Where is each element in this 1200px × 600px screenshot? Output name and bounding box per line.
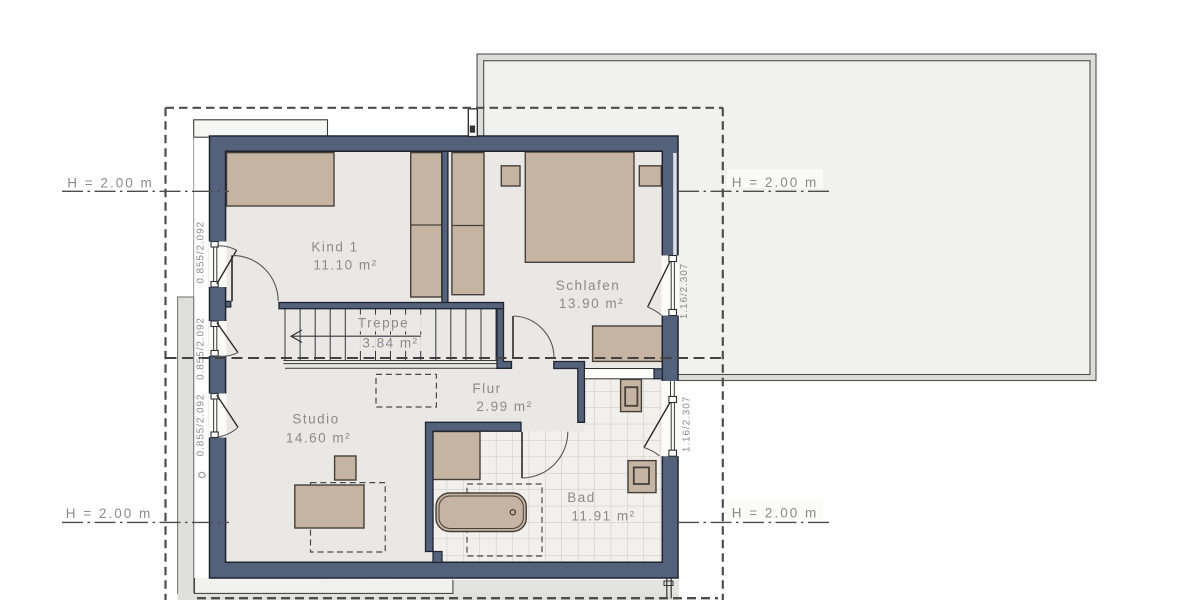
svg-text:0.855/2.092: 0.855/2.092 (195, 317, 206, 380)
svg-text:0.855/2.092: 0.855/2.092 (195, 221, 206, 284)
svg-text:1.16/2.307: 1.16/2.307 (682, 396, 693, 452)
svg-text:13.90 m²: 13.90 m² (559, 296, 624, 311)
svg-text:H = 2.00 m: H = 2.00 m (67, 176, 153, 191)
svg-text:H = 2.00 m: H = 2.00 m (732, 506, 818, 521)
svg-text:0.855/2.092: 0.855/2.092 (195, 394, 206, 457)
svg-text:1.16/2.307: 1.16/2.307 (679, 263, 690, 319)
svg-text:H = 2.00 m: H = 2.00 m (66, 506, 152, 521)
svg-text:Flur: Flur (472, 381, 501, 396)
svg-text:Bad: Bad (567, 490, 596, 505)
svg-text:2.99 m²: 2.99 m² (476, 399, 532, 414)
svg-text:11.10 m²: 11.10 m² (313, 258, 377, 273)
svg-text:H = 2.00 m: H = 2.00 m (732, 175, 818, 190)
svg-text:3.84 m²: 3.84 m² (362, 336, 418, 351)
svg-text:Schlafen: Schlafen (556, 278, 621, 293)
svg-text:Studio: Studio (292, 412, 339, 427)
svg-text:Kind 1: Kind 1 (311, 240, 358, 255)
svg-text:14.60 m²: 14.60 m² (286, 431, 351, 446)
svg-text:Treppe: Treppe (358, 316, 409, 331)
svg-text:11.91 m²: 11.91 m² (571, 509, 635, 524)
